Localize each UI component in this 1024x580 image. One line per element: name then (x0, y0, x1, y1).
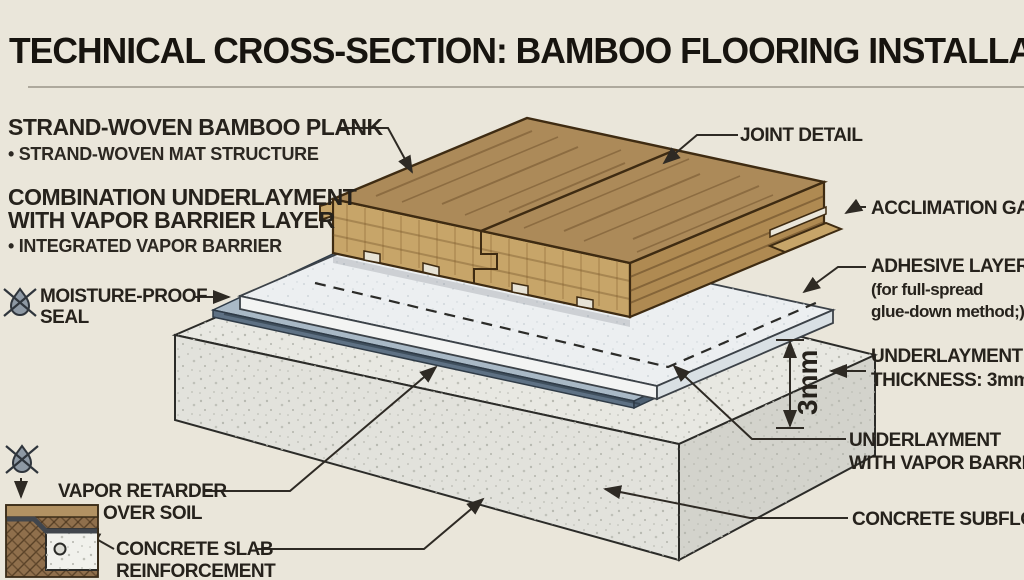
label-moisture-seal-2: SEAL (40, 307, 89, 329)
no-moisture-icon-top (4, 289, 36, 316)
label-underlayment-heading-2: WITH VAPOR BARRIER LAYER (8, 207, 335, 234)
label-plank-heading: STRAND-WOVEN BAMBOO PLANK (8, 114, 383, 141)
label-underlayment-vb-2: WITH VAPOR BARRIER (849, 453, 1024, 475)
dimension-3mm-text: 3mm (792, 355, 824, 415)
page-title: TECHNICAL CROSS-SECTION: BAMBOO FLOORING… (9, 30, 1024, 72)
label-joint-detail: JOINT DETAIL (740, 125, 862, 147)
infographic-canvas: TECHNICAL CROSS-SECTION: BAMBOO FLOORING… (0, 0, 1024, 580)
label-slab-reinforcement-1: CONCRETE SLAB (116, 539, 273, 561)
leader-acclimation-gap (846, 207, 866, 213)
no-moisture-icon-bottom (6, 446, 38, 473)
rebar-circle (55, 544, 66, 555)
label-plank-sub: • STRAND-WOVEN MAT STRUCTURE (8, 144, 319, 165)
label-underlayment-vb-1: UNDERLAYMENT (849, 430, 1001, 452)
label-thickness-2: THICKNESS: 3mm (871, 370, 1024, 392)
label-concrete-subfloor: CONCRETE SUBFLOOR (852, 509, 1024, 531)
label-adhesive-3: glue-down method;) (871, 302, 1024, 322)
title-divider (28, 86, 1024, 88)
leader-adhesive (804, 267, 866, 292)
label-vapor-retarder-2: OVER SOIL (58, 503, 202, 525)
label-slab-reinforcement-2: REINFORCEMENT (116, 561, 275, 580)
label-adhesive-2: (for full-spread (871, 280, 983, 300)
label-acclimation-gap: ACCLIMATION GAP (871, 198, 1024, 220)
label-moisture-seal-1: MOISTURE-PROOF (40, 286, 207, 308)
label-adhesive-1: ADHESIVE LAYER (871, 256, 1024, 278)
label-thickness-1: UNDERLAYMENT (871, 346, 1023, 368)
label-underlayment-sub: • INTEGRATED VAPOR BARRIER (8, 236, 282, 257)
label-vapor-retarder-1: VAPOR RETARDER (58, 481, 202, 503)
leader-slab-reinforcement-right (256, 499, 483, 549)
